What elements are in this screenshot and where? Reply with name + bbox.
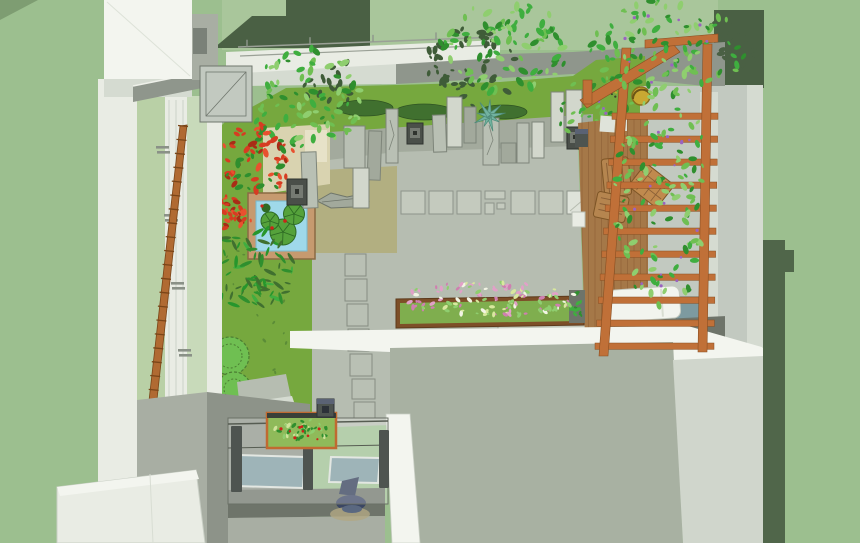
- lower-roof: [390, 342, 683, 543]
- vine-column-flowers-leaf: [680, 256, 683, 259]
- pergola-rung: [602, 251, 716, 257]
- pergola-rung: [598, 297, 714, 303]
- stone-lantern-1: [287, 179, 307, 205]
- dark-hedge-strip: [763, 240, 785, 543]
- shrubs-right-flowers-leaf: [602, 107, 605, 110]
- right-wall-white: [747, 85, 763, 347]
- vine-column-flowers-leaf: [640, 282, 643, 285]
- vine-top-flowers-leaf: [698, 23, 701, 26]
- vine-column-flowers-leaf: [657, 131, 660, 134]
- vine-column-flowers-leaf: [696, 229, 699, 232]
- vine-top-flowers-leaf: [628, 61, 630, 63]
- red-tree-large-leaf: [284, 173, 287, 179]
- glass-lightwell: [228, 399, 389, 543]
- aquarium-fruits-leaf: [298, 426, 301, 429]
- facade-wall-strip: [98, 79, 137, 487]
- moss-mound-1: [337, 100, 393, 116]
- lightwell-floor-lower: [228, 516, 385, 543]
- roof-face-white: [104, 0, 192, 79]
- vine-top-flowers-leaf: [650, 81, 653, 84]
- vine-column-flowers-leaf: [649, 185, 652, 188]
- vine-top-flowers-leaf: [677, 19, 680, 22]
- vine-column-flowers-leaf: [680, 141, 683, 144]
- glass-post-3: [379, 430, 389, 488]
- vine-column-flowers-leaf: [663, 202, 666, 205]
- vine-top-flowers-leaf: [705, 40, 708, 43]
- stone-lantern-2: [407, 123, 423, 144]
- aquarium-fruits-leaf: [316, 438, 318, 440]
- vine-top-flowers-leaf: [633, 16, 636, 19]
- vine-column-flowers-leaf: [660, 273, 662, 275]
- lily-pad-vein: [283, 232, 284, 245]
- right-wall-band: [725, 85, 747, 347]
- garden-render: [0, 0, 860, 543]
- bird-ornament-accent-leaf: [615, 92, 617, 94]
- fern-left-leaf: [225, 284, 227, 292]
- vine-column-leaf: [648, 289, 653, 298]
- glass-post-1: [231, 426, 242, 492]
- shrubs-right-flowers-leaf: [604, 112, 607, 115]
- pergola-rung: [604, 228, 717, 234]
- pergola-rung: [597, 320, 715, 326]
- vine-column-flowers-leaf: [675, 279, 678, 282]
- aquarium-fruits-leaf: [318, 427, 321, 430]
- deck-white-stool: [572, 212, 585, 227]
- aquarium-fruits-leaf: [302, 430, 305, 433]
- vine-column-flowers-leaf: [666, 135, 669, 138]
- pergola-rung: [607, 182, 717, 188]
- vine-column-flowers-leaf: [688, 139, 691, 142]
- vine-column-flowers-leaf: [673, 164, 675, 166]
- dark-hedge-notch: [785, 250, 794, 272]
- pergola-rung: [600, 274, 715, 280]
- aquarium-fruits-leaf: [279, 427, 282, 430]
- vine-top-flowers-leaf: [670, 63, 673, 66]
- aquarium-fruits-leaf: [293, 436, 296, 439]
- dormer-window: [193, 28, 207, 54]
- roof-parapet: [673, 356, 763, 543]
- pergola-post-stub: [583, 80, 592, 104]
- flower-planter: [396, 296, 584, 328]
- aquarium-fruits-leaf: [289, 430, 291, 432]
- aquarium-fruits-leaf: [307, 435, 310, 438]
- vine-top-flowers-leaf: [647, 14, 650, 17]
- vine-column-flowers-leaf: [633, 208, 636, 211]
- pergola-rung: [595, 343, 714, 349]
- vine-column-leaf: [688, 156, 697, 161]
- vine-column-flowers-leaf: [660, 284, 663, 287]
- white-lounge-bed: [607, 286, 681, 323]
- vine-top-leaf: [664, 45, 669, 53]
- vine-top-flowers-leaf: [623, 37, 626, 40]
- pergola-rung: [605, 205, 716, 211]
- bird-ornament-leaf: [614, 96, 616, 98]
